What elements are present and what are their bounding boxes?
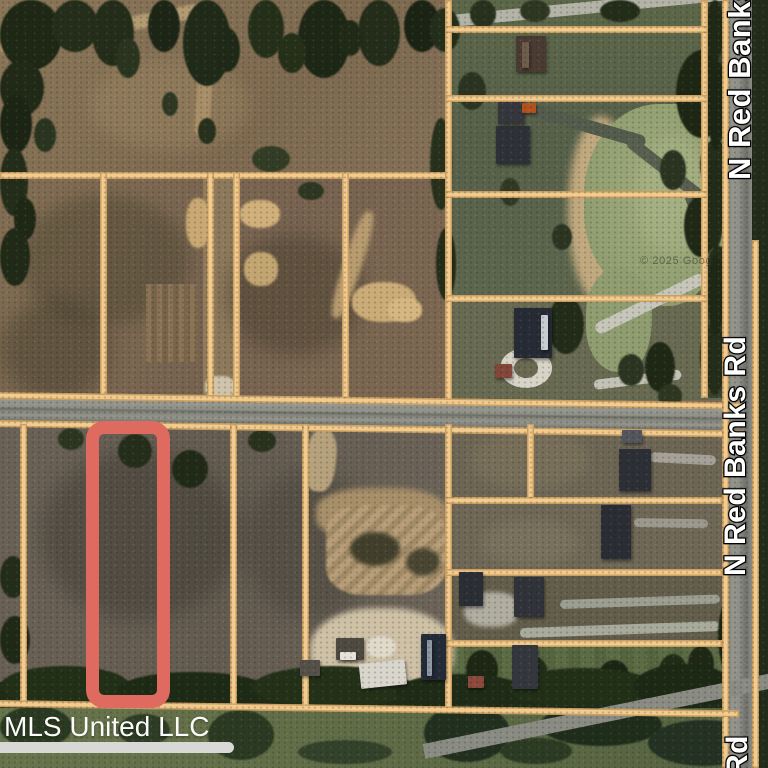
tree bbox=[358, 0, 400, 66]
building bbox=[512, 645, 538, 689]
tree bbox=[458, 72, 486, 110]
parcel-line bbox=[0, 172, 452, 179]
tree bbox=[34, 118, 56, 152]
building bbox=[601, 505, 631, 559]
building bbox=[496, 126, 530, 164]
tree bbox=[0, 95, 32, 153]
mottle bbox=[0, 300, 110, 400]
road-label-n-red-banks-top: N Red Banks bbox=[724, 0, 755, 180]
building bbox=[459, 572, 483, 606]
tree bbox=[600, 0, 640, 22]
parcel-line bbox=[445, 640, 722, 647]
parcel-line bbox=[701, 0, 708, 398]
tree bbox=[252, 146, 290, 172]
satellite-map: © 2025 Goog N Red Banks N Red Banks Rd R… bbox=[0, 0, 768, 768]
parcel-line bbox=[445, 295, 708, 302]
parcel-line bbox=[445, 569, 722, 576]
building bbox=[522, 42, 529, 68]
driveway-loop-center bbox=[514, 358, 538, 378]
tree bbox=[198, 118, 216, 144]
attribution-bar bbox=[0, 742, 234, 753]
parcel-line bbox=[233, 172, 240, 398]
building bbox=[495, 364, 512, 378]
map-copyright: © 2025 Goog bbox=[640, 255, 712, 267]
tree bbox=[396, 674, 526, 708]
parcel-line bbox=[445, 0, 452, 400]
tree bbox=[298, 740, 392, 764]
tree bbox=[470, 0, 496, 28]
parcel-line bbox=[20, 424, 27, 706]
parcel-line bbox=[527, 424, 534, 504]
tree bbox=[552, 224, 572, 250]
parcel-line bbox=[445, 26, 708, 33]
building bbox=[622, 430, 642, 443]
gully bbox=[406, 548, 440, 576]
tree bbox=[116, 38, 140, 78]
tree bbox=[618, 354, 644, 386]
tree bbox=[214, 28, 240, 72]
parcel-line bbox=[100, 172, 107, 398]
tree bbox=[148, 0, 180, 52]
tree bbox=[520, 0, 550, 22]
building bbox=[619, 449, 651, 491]
road-label-n-red-banks-rd: N Red Banks Rd bbox=[721, 336, 751, 576]
tree bbox=[58, 428, 84, 450]
tree bbox=[660, 150, 686, 190]
mottle bbox=[40, 450, 240, 620]
parcel-line bbox=[445, 191, 708, 198]
sand-pile bbox=[366, 636, 396, 658]
tree bbox=[118, 434, 152, 468]
building bbox=[421, 634, 446, 680]
building bbox=[300, 660, 320, 676]
tree bbox=[162, 92, 178, 116]
building bbox=[541, 315, 548, 350]
tree bbox=[248, 430, 276, 452]
parcel-line bbox=[445, 424, 452, 710]
excavation bbox=[388, 298, 422, 322]
mottle bbox=[480, 520, 580, 565]
field-rows bbox=[146, 284, 198, 362]
parcel-line bbox=[445, 95, 708, 102]
building bbox=[359, 659, 407, 689]
parcel-line bbox=[342, 172, 349, 398]
tree bbox=[548, 296, 584, 354]
building bbox=[516, 36, 546, 72]
tree bbox=[298, 182, 324, 200]
building bbox=[522, 103, 536, 113]
tree bbox=[172, 450, 208, 488]
tree bbox=[52, 0, 98, 52]
building bbox=[498, 102, 524, 124]
tree bbox=[338, 20, 362, 56]
building bbox=[468, 676, 484, 688]
tree bbox=[500, 738, 572, 764]
parcel-line bbox=[752, 240, 759, 768]
excavation bbox=[240, 200, 280, 228]
driveway bbox=[634, 518, 708, 528]
tree bbox=[0, 228, 30, 286]
mls-watermark: MLS United LLC bbox=[4, 711, 209, 743]
parcel-line bbox=[445, 497, 722, 504]
building bbox=[427, 640, 432, 676]
excavation bbox=[244, 252, 278, 286]
parcel-line bbox=[230, 424, 237, 706]
building bbox=[514, 577, 544, 617]
gully bbox=[350, 532, 400, 566]
road-label-rd-bottom: Rd bbox=[723, 735, 753, 768]
parcel-line bbox=[207, 172, 214, 398]
tree bbox=[278, 33, 306, 73]
building bbox=[340, 652, 356, 660]
